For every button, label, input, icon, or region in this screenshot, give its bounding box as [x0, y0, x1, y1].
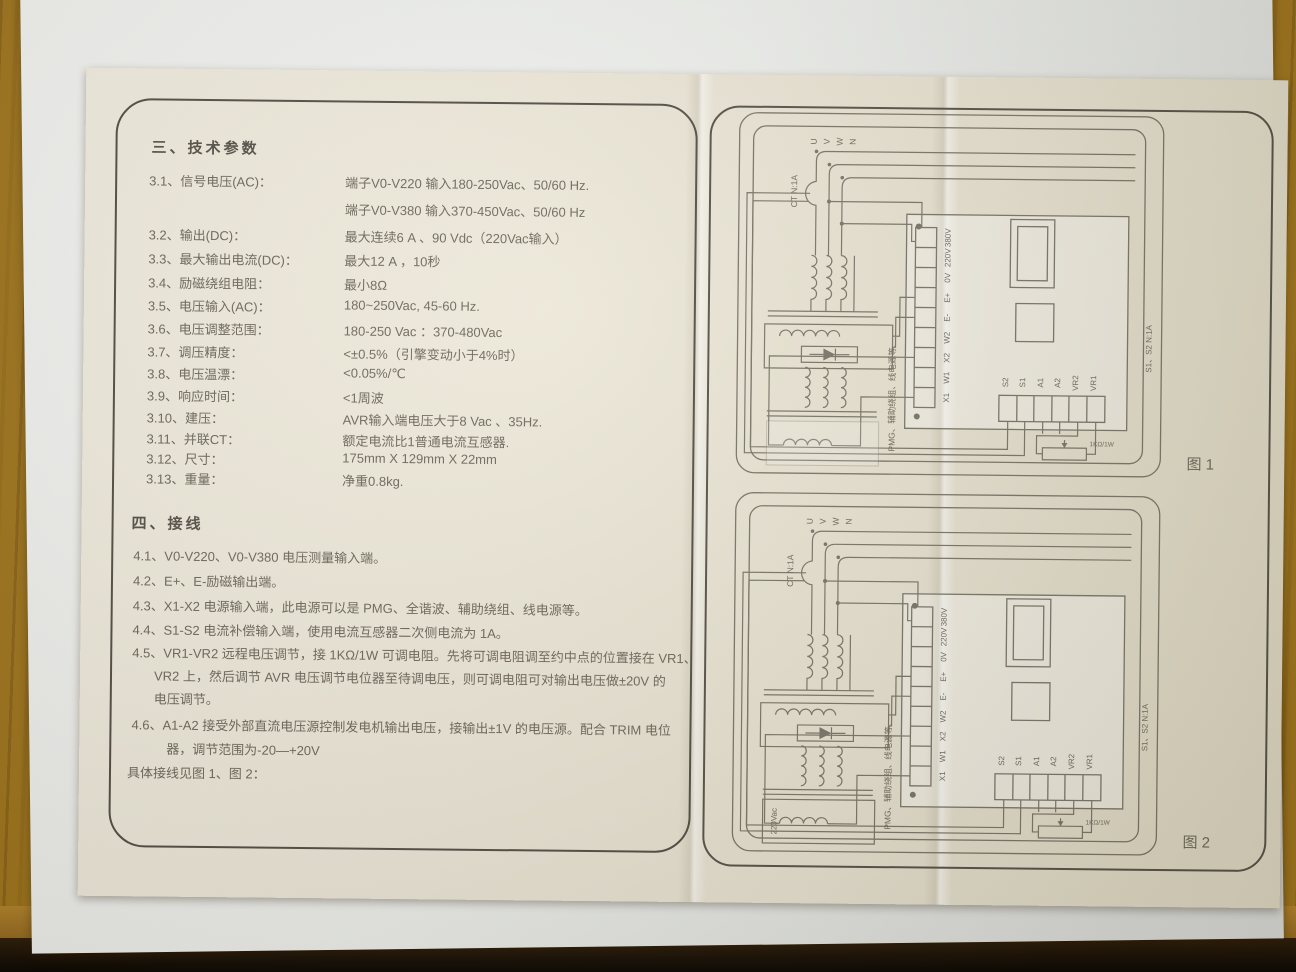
ct-caption: S1、S2 N:1A — [1140, 703, 1150, 751]
spec-row: 3.8、电压温漂：<0.05%/℃ — [147, 363, 683, 389]
wiring-line: 4.3、X1-X2 电源输入端，此电源可以是 PMG、全谐波、辅助绕组、线电源等… — [133, 595, 588, 619]
figure-2-caption: 图 2 — [1182, 834, 1210, 851]
phase-label: N — [848, 139, 858, 145]
spec-value: 最大连续6 A 、90 Vdc（220Vac输入） — [345, 226, 568, 247]
figure-1-caption: 图 1 — [1186, 456, 1214, 473]
spec-value: 180~250Vac, 45-60 Hz. — [344, 297, 480, 313]
spec-value: 净重0.8kg. — [342, 470, 404, 490]
pot-value-label: 1KΩ/1W — [1089, 441, 1114, 448]
spec-value: 端子V0-V380 输入370-450Vac、50/60 Hz — [345, 199, 586, 221]
aux-terminal-label: S2 — [1001, 377, 1010, 387]
avr-board — [905, 214, 1129, 430]
phase-label: N — [844, 518, 854, 524]
spec-value: AVR输入端电压大于8 Vac 、35Hz. — [343, 409, 543, 430]
diode-icon — [823, 348, 835, 360]
aux-terminal-label: A1 — [1036, 377, 1045, 387]
section3-title: 三、技术参数 — [151, 136, 259, 158]
instruction-sheet: 三、技术参数 3.1、信号电压(AC)：端子V0-V220 输入180-250V… — [78, 68, 1289, 909]
spec-label: 3.7、调压精度： — [147, 341, 243, 361]
wiring-line: 4.1、V0-V220、V0-V380 电压测量输入端。 — [133, 545, 386, 567]
terminal-label: X2 — [938, 731, 947, 741]
terminal-label: 380V — [944, 228, 953, 247]
terminal-label: 380V — [940, 607, 949, 626]
spec-row: 3.6、电压调整范围：180-250 Vac ：370-480Vac — [148, 318, 684, 344]
spec-label: 3.13、重量： — [146, 468, 224, 488]
phase-label: V — [818, 518, 828, 524]
wiring-line: 具体接线见图 1、图 2： — [127, 762, 266, 782]
photo-of-manual-on-table: 三、技术参数 3.1、信号电压(AC)：端子V0-V220 输入180-250V… — [0, 0, 1296, 972]
source-box-faint — [766, 421, 878, 466]
phase-label: W — [835, 138, 845, 146]
aux-terminal-label: S2 — [997, 755, 1006, 765]
spec-label: 3.8、电压温漂： — [147, 363, 243, 383]
terminal-label: E- — [943, 313, 952, 321]
spec-value: 最大12 A ，10秒 — [344, 250, 440, 270]
wiring-line: 器，调节范围为-20—+20V — [166, 739, 320, 760]
terminal-label: 0V — [939, 651, 948, 661]
spec-value: 端子V0-V220 输入180-250Vac、50/60 Hz. — [345, 172, 589, 194]
spec-value: 最小8Ω — [344, 274, 387, 293]
spec-label: 3.6、电压调整范围： — [148, 318, 270, 338]
spec-label: 3.4、励磁绕组电阻： — [148, 272, 270, 292]
spec-label: 3.12、尺寸： — [146, 448, 224, 468]
diode-icon — [819, 727, 831, 739]
spec-value: 180-250 Vac ：370-480Vac — [344, 320, 503, 341]
spec-label: 3.3、最大输出电流(DC)： — [148, 248, 298, 269]
aux-terminal-label: S1 — [1014, 756, 1023, 766]
terminal-label: W2 — [943, 331, 952, 344]
source-voltage-label: 220Vac — [769, 808, 778, 834]
phase-label: U — [805, 518, 815, 524]
terminal-label: 220V — [943, 248, 952, 267]
aux-terminal-label: VR1 — [1085, 753, 1094, 769]
terminal-label: X1 — [938, 771, 947, 781]
spec-row: 端子V0-V380 输入370-450Vac、50/60 Hz — [149, 197, 685, 223]
spec-label: 3.5、电压输入(AC)： — [148, 295, 271, 315]
figure-1-wiring-diagram: U V W N CT N:1A 380V 220V 0V E+ E- W2 X2… — [708, 104, 1260, 490]
terminal-label: 220V — [939, 627, 948, 646]
spec-row: 3.1、信号电压(AC)：端子V0-V220 输入180-250Vac、50/6… — [149, 170, 685, 196]
left-page-border: 三、技术参数 3.1、信号电压(AC)：端子V0-V220 输入180-250V… — [108, 98, 698, 853]
spec-row: 3.2、输出(DC)：最大连续6 A 、90 Vdc（220Vac输入） — [149, 224, 685, 250]
pot-wiper-arrow-icon — [1061, 443, 1067, 448]
spec-row: 3.7、调压精度：<±0.5%（引擎变动小于4%时） — [147, 341, 683, 367]
spec-value: 175mm X 129mm X 22mm — [342, 450, 497, 467]
spec-row: 3.3、最大输出电流(DC)：最大12 A ，10秒 — [148, 248, 684, 274]
terminal-label: X1 — [942, 392, 951, 402]
terminal-label: W1 — [942, 371, 951, 384]
spec-value: <±0.5%（引擎变动小于4%时） — [343, 343, 523, 364]
terminal-label: E+ — [939, 671, 948, 681]
spec-row: 3.13、重量：净重0.8kg. — [146, 468, 682, 494]
aux-terminal-label: A2 — [1053, 377, 1062, 387]
figure-2-wiring-diagram: U V W N CT N:1A 380V 220V 0V E+ E- W2 X2… — [704, 484, 1256, 868]
aux-terminal-label: S1 — [1018, 377, 1027, 387]
spec-value: 额定电流比1普通电流互感器. — [342, 430, 509, 451]
aux-terminal-label: A2 — [1049, 756, 1058, 766]
ct-caption: S1、S2 N:1A — [1144, 324, 1154, 372]
pot-value-label: 1KΩ/1W — [1085, 819, 1110, 826]
terminal-label: W1 — [938, 750, 947, 763]
terminal-label: X2 — [942, 352, 951, 362]
spec-label: 3.11、并联CT： — [146, 428, 240, 448]
spec-label: 3.10、建压： — [147, 407, 225, 427]
source-caption: PMG、辅助绕组、线电源等. — [886, 345, 897, 452]
spec-value: <1周波 — [343, 387, 384, 406]
wiring-line: VR2 上，然后调节 AVR 电压调节电位器至待调电压，则可调电阻可对输出电压做… — [154, 665, 666, 689]
spec-row: 3.4、励磁绕组电阻：最小8Ω — [148, 272, 684, 298]
phase-label: V — [822, 138, 832, 144]
ct-label: CT N:1A — [785, 554, 795, 587]
wiring-line: 4.4、S1-S2 电流补偿输入端，使用电流互感器二次侧电流为 1A。 — [132, 619, 509, 642]
source-caption: PMG、辅助绕组、线电源等. — [882, 724, 893, 830]
aux-terminal-label: VR2 — [1067, 753, 1076, 769]
terminal-label: W2 — [939, 710, 948, 723]
terminal-label: 0V — [943, 272, 952, 283]
wiring-line: 4.6、A1-A2 接受外部直流电压源控制发电机输出电压，接输出±1V 的电压源… — [131, 714, 671, 739]
spec-label: 3.1、信号电压(AC)： — [149, 170, 272, 190]
spec-row: 3.9、响应时间：<1周波 — [147, 385, 683, 411]
phase-label: U — [809, 138, 819, 144]
wiring-line: 电压调节。 — [154, 688, 219, 708]
spec-label: 3.9、响应时间： — [147, 385, 243, 405]
avr-board — [901, 594, 1125, 809]
wiring-line: 4.5、VR1-VR2 远程电压调节，接 1KΩ/1W 可调电阻。先将可调电阻调… — [132, 642, 697, 667]
spec-value: <0.05%/℃ — [343, 365, 406, 382]
spec-row: 3.5、电压输入(AC)：180~250Vac, 45-60 Hz. — [148, 295, 684, 321]
section4-title: 四、接线 — [131, 512, 203, 534]
aux-terminal-label: VR1 — [1089, 375, 1098, 391]
aux-terminal-label: A1 — [1032, 756, 1041, 766]
terminal-label: E+ — [943, 292, 952, 302]
pot-wiper-arrow-icon — [1057, 821, 1063, 826]
aux-terminal-label: VR2 — [1071, 375, 1080, 391]
spec-label: 3.2、输出(DC)： — [149, 224, 247, 244]
wiring-line: 4.2、E+、E-励磁输出端。 — [133, 570, 285, 591]
ct-label: CT N:1A — [789, 175, 799, 208]
phase-label: W — [831, 517, 841, 525]
terminal-label: E- — [939, 692, 948, 700]
